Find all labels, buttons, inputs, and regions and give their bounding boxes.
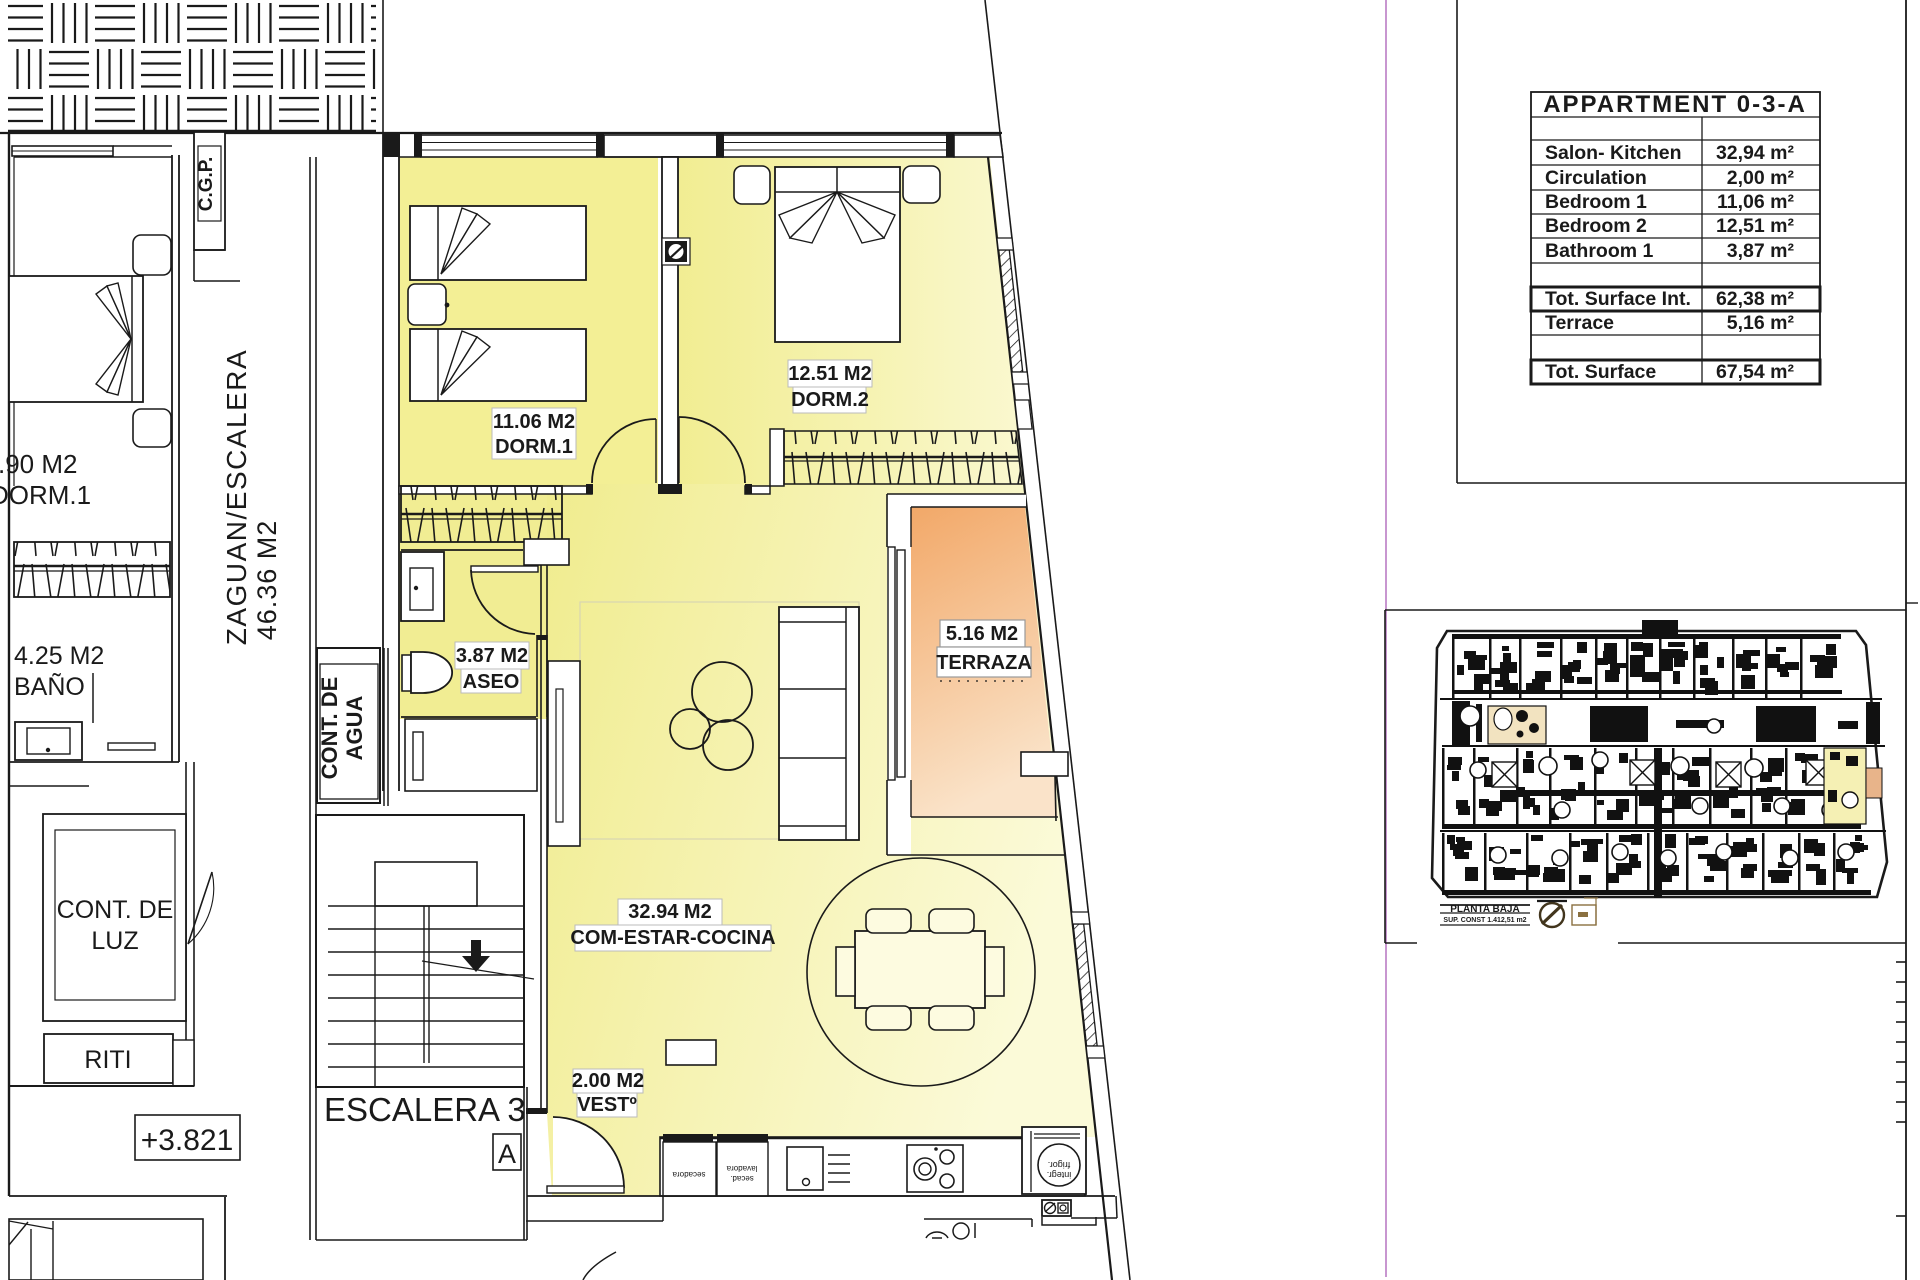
svg-text:CONT. DE: CONT. DE xyxy=(57,896,174,924)
svg-text:32.94 M2: 32.94 M2 xyxy=(628,901,711,923)
svg-text:3.87 M2: 3.87 M2 xyxy=(456,645,528,667)
svg-text:lavadora: lavadora xyxy=(726,1164,757,1173)
svg-text:DORM.1: DORM.1 xyxy=(0,480,91,510)
svg-text:COM-ESTAR-COCINA: COM-ESTAR-COCINA xyxy=(570,927,775,949)
svg-text:2.00 M2: 2.00 M2 xyxy=(572,1070,644,1092)
svg-text:5,16 m²: 5,16 m² xyxy=(1727,312,1795,334)
svg-text:BAÑO: BAÑO xyxy=(14,672,85,701)
svg-text:TERRAZA: TERRAZA xyxy=(936,652,1032,674)
svg-text:5.16 M2: 5.16 M2 xyxy=(946,623,1018,645)
svg-text:62,38 m²: 62,38 m² xyxy=(1716,288,1795,310)
svg-text:ESCALERA 3: ESCALERA 3 xyxy=(324,1091,526,1128)
svg-text:SUP. CONST 1.412,51 m2: SUP. CONST 1.412,51 m2 xyxy=(1443,917,1526,924)
svg-text:AGUA: AGUA xyxy=(342,696,367,761)
svg-text:A: A xyxy=(498,1139,516,1169)
svg-text:Tot. Surface Int.: Tot. Surface Int. xyxy=(1545,288,1691,310)
svg-text:Bedroom 1: Bedroom 1 xyxy=(1545,191,1647,213)
svg-text:PLANTA BAJA: PLANTA BAJA xyxy=(1450,904,1519,915)
svg-text:secadora: secadora xyxy=(672,1170,705,1179)
svg-text:3,87 m²: 3,87 m² xyxy=(1727,240,1795,262)
svg-text:ZAGUAN/ESCALERA: ZAGUAN/ESCALERA xyxy=(221,349,252,645)
svg-text:secad.: secad. xyxy=(730,1174,754,1183)
svg-text:RITI: RITI xyxy=(84,1046,131,1074)
svg-text:Circulation: Circulation xyxy=(1545,167,1647,189)
svg-text:67,54 m²: 67,54 m² xyxy=(1716,361,1795,383)
svg-text:integr.: integr. xyxy=(1047,1170,1072,1180)
svg-text:Terrace: Terrace xyxy=(1545,312,1614,334)
svg-text:12,51 m²: 12,51 m² xyxy=(1716,215,1795,237)
svg-text:Bedroom 2: Bedroom 2 xyxy=(1545,215,1647,237)
svg-text:2,00 m²: 2,00 m² xyxy=(1727,167,1795,189)
svg-text:+3.821: +3.821 xyxy=(141,1124,234,1157)
svg-text:Salon- Kitchen: Salon- Kitchen xyxy=(1545,142,1682,164)
svg-text:.90 M2: .90 M2 xyxy=(0,449,78,479)
svg-text:ASEO: ASEO xyxy=(463,671,520,693)
svg-text:11.06 M2: 11.06 M2 xyxy=(493,411,575,433)
svg-text:CONT. DE: CONT. DE xyxy=(317,677,342,780)
svg-text:32,94 m²: 32,94 m² xyxy=(1716,142,1795,164)
svg-text:DORM.2: DORM.2 xyxy=(791,389,869,411)
svg-text:12.51 M2: 12.51 M2 xyxy=(788,363,871,385)
svg-text:LUZ: LUZ xyxy=(91,927,138,955)
svg-text:frigor.: frigor. xyxy=(1048,1160,1071,1170)
svg-text:VESTº: VESTº xyxy=(577,1094,637,1116)
svg-text:C.G.P.: C.G.P. xyxy=(196,157,217,212)
svg-text:DORM.1: DORM.1 xyxy=(495,436,573,458)
svg-text:Tot. Surface: Tot. Surface xyxy=(1545,361,1656,383)
svg-text:4.25 M2: 4.25 M2 xyxy=(14,642,104,670)
svg-text:46.36 M2: 46.36 M2 xyxy=(252,520,282,641)
svg-text:Bathroom 1: Bathroom 1 xyxy=(1545,240,1654,262)
svg-text:APPARTMENT 0-3-A: APPARTMENT 0-3-A xyxy=(1543,91,1807,118)
svg-text:11,06 m²: 11,06 m² xyxy=(1717,191,1794,213)
